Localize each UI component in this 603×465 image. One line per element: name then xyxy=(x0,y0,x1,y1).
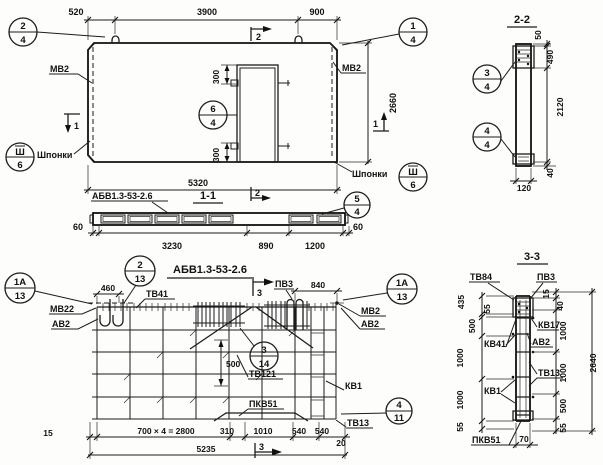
dim-3230: 3230 xyxy=(162,241,182,251)
dim-120: 120 xyxy=(517,183,531,193)
dim-500-group: 500 xyxy=(214,340,240,386)
dim-460: 460 xyxy=(101,283,115,293)
plan2-bottom-dims: 15 700 × 4 = 2800 310 1010 540 540 20 52… xyxy=(43,422,350,459)
label-shponki-left: Шпонки xyxy=(37,141,90,160)
dim-15: 15 xyxy=(43,428,53,438)
callout-bot: 4 xyxy=(484,140,490,151)
dim-1010: 1010 xyxy=(254,426,273,436)
reinforcement-plan-view: АБВ1.3-53-2.6 2 13 xyxy=(5,256,417,459)
callout-sh-6-right: Ш 6 xyxy=(399,163,427,191)
label-mv2-right: МВ2 xyxy=(333,62,366,73)
section-2-2-title: 2-2 xyxy=(514,14,530,26)
callout-top: 4 xyxy=(484,126,490,137)
dim-520: 520 xyxy=(68,7,83,17)
dim-300-top: 300 xyxy=(211,70,221,84)
section-1-label: 1 xyxy=(373,119,378,129)
section-mark-2-bot: 2 xyxy=(251,187,271,201)
callout-bot: 4 xyxy=(210,118,216,129)
label-pkv51-sec33: ПКВ51 xyxy=(471,421,521,445)
callout-top: 4 xyxy=(396,400,402,411)
label-kv17: КВ17 xyxy=(531,318,560,330)
callout-top: 1 xyxy=(410,21,416,32)
opening-dim-300-top: 300 xyxy=(211,65,237,84)
tv121-text: ТВ121 xyxy=(249,369,276,379)
kv1-text: КВ1 xyxy=(345,381,362,391)
shponki-left-text: Шпонки xyxy=(37,150,72,160)
dim-55-bot-left: 55 xyxy=(455,422,465,432)
label-shponki-right: Шпонки xyxy=(334,162,387,179)
dim-70: 70 xyxy=(519,434,529,444)
pkv51-text: ПКВ51 xyxy=(472,435,500,445)
dim-500-left: 500 xyxy=(467,319,477,333)
section-1-1-title: 1-1 xyxy=(200,190,216,202)
section-1-1-dims: 60 3230 890 1200 60 xyxy=(73,222,363,251)
tv13-text: ТВ13 xyxy=(538,368,560,378)
kv17-text: КВ17 xyxy=(538,320,560,330)
callout-top: Ш xyxy=(408,167,418,178)
label-kv1-plan2: КВ1 xyxy=(326,381,362,391)
dim-2660: 2660 xyxy=(388,93,398,113)
callout-top: 5 xyxy=(354,194,360,205)
callout-3-14: 3 14 xyxy=(240,328,278,370)
dim-435: 435 xyxy=(456,295,466,309)
callout-top: 2 xyxy=(20,21,25,32)
dim-300-bot: 300 xyxy=(211,148,221,162)
dim-60-right: 60 xyxy=(353,222,363,232)
section-3-3-view: 3-3 435 55 500 1000 1000 55 xyxy=(455,251,598,448)
label-mv2-left: МВ2 xyxy=(49,64,92,83)
panel-elevation-view: 300 300 520 3900 900 2660 xyxy=(37,7,398,194)
callout-bot: 4 xyxy=(484,82,490,93)
callout-1a-13-left: 1А 13 xyxy=(5,273,92,304)
section-mark-1-right: 1 xyxy=(373,112,389,131)
callout-top: 1А xyxy=(396,278,408,289)
av2-left-text: АВ2 xyxy=(52,319,70,329)
dim-20: 20 xyxy=(336,438,346,448)
dim-60-left: 60 xyxy=(73,222,83,232)
dim-5235: 5235 xyxy=(197,444,216,454)
lifting-loop-icon xyxy=(112,36,302,43)
callout-bot: 4 xyxy=(354,207,360,218)
callout-6-4: 6 4 xyxy=(199,101,237,129)
callout-3-4: 3 4 xyxy=(473,62,515,93)
callout-bot: 13 xyxy=(135,274,146,285)
shponki-right-text: Шпонки xyxy=(352,169,387,179)
dim-500-right: 500 xyxy=(558,399,568,413)
section-mark-1-left: 1 xyxy=(64,114,80,133)
tv13-text: ТВ13 xyxy=(347,418,369,428)
dim-900: 900 xyxy=(309,7,324,17)
opening-dim-300-bot: 300 xyxy=(211,143,237,162)
section-mark-3-bot: 3 xyxy=(255,442,282,458)
pkv51-bar-icon xyxy=(214,413,308,421)
pkv51-text: ПКВ51 xyxy=(249,399,277,409)
door-opening xyxy=(231,65,290,162)
label-mv22: МВ22 xyxy=(49,304,96,314)
dim-460-group: 460 xyxy=(93,283,124,304)
dim-1200: 1200 xyxy=(305,241,325,251)
label-pv3: ПВ3 xyxy=(274,279,294,299)
section-3-3-right-dims: 15 40 1000 1000 500 55 2640 xyxy=(532,288,598,435)
callout-bot: 4 xyxy=(410,35,416,46)
section-mark-2-top: 2 xyxy=(251,26,272,42)
callout-top: 2 xyxy=(137,260,142,271)
label-av2-left: АВ2 xyxy=(51,319,98,329)
tv41-text: ТВ41 xyxy=(146,289,168,299)
dim-500: 500 xyxy=(226,359,240,369)
dim-2640: 2640 xyxy=(588,353,598,372)
label-kv1-sec33: КВ1 xyxy=(484,380,515,403)
callout-bot: 6 xyxy=(410,180,415,191)
label-tv13-plan2: ТВ13 xyxy=(336,418,373,428)
pv3-text: ПВ3 xyxy=(537,272,555,282)
mv22-hook-icon xyxy=(100,299,123,326)
mv2-left-text: МВ2 xyxy=(50,64,69,74)
callout-bot: 11 xyxy=(394,413,405,424)
av2-text: АВ2 xyxy=(532,337,550,347)
dim-840-group: 840 xyxy=(291,280,342,301)
callout-bot: 4 xyxy=(20,35,26,46)
dim-890: 890 xyxy=(258,241,273,251)
callout-4-4: 4 4 xyxy=(473,123,515,157)
dim-40-right: 40 xyxy=(555,301,565,311)
av2-right-text: АВ2 xyxy=(361,319,379,329)
callout-bot: 13 xyxy=(397,292,408,303)
reinforcement-plan-title: АБВ1.3-53-2.6 xyxy=(173,264,247,276)
callout-top: 3 xyxy=(484,68,489,79)
dim-55-top: 55 xyxy=(482,304,492,314)
callout-1a-13-right: 1А 13 xyxy=(343,274,417,304)
dim-1000a-left: 1000 xyxy=(455,348,465,367)
hollow-core-voids xyxy=(101,215,341,223)
label-kv41: КВ41 xyxy=(484,319,516,349)
dim-40: 40 xyxy=(545,168,555,178)
callout-top: Ш xyxy=(15,147,25,158)
section-3-label: 3 xyxy=(259,442,264,452)
mv2-text: МВ2 xyxy=(361,306,380,316)
dim-840: 840 xyxy=(311,280,325,290)
callout-top: 6 xyxy=(210,104,215,115)
callout-top: 3 xyxy=(261,345,266,356)
plan-height-dim: 2660 xyxy=(339,40,398,165)
dim-490: 490 xyxy=(545,50,555,64)
plan-top-dims: 520 3900 900 xyxy=(68,7,341,40)
dim-50: 50 xyxy=(533,30,543,40)
dim-2120: 2120 xyxy=(555,97,565,116)
mv2-right-text: МВ2 xyxy=(342,63,361,73)
abv-mark-label: АБВ1.3-53-2.6 xyxy=(92,191,153,201)
dim-3900: 3900 xyxy=(197,7,217,17)
callout-1-4: 1 4 xyxy=(342,18,427,46)
rebar-mesh xyxy=(88,299,344,421)
section-2-label: 2 xyxy=(255,188,260,198)
dim-540b: 540 xyxy=(315,426,329,436)
engineering-drawing-panel-abv: 300 300 520 3900 900 2660 xyxy=(0,0,603,465)
panel-outline xyxy=(88,43,337,162)
callout-top: 1А xyxy=(14,277,26,288)
label-tv41: ТВ41 xyxy=(136,289,175,308)
callout-5-4: 5 4 xyxy=(322,192,370,218)
dim-15-right: 15 xyxy=(541,289,551,299)
section-2-label: 2 xyxy=(256,32,261,42)
section-1-label: 1 xyxy=(74,121,79,131)
callout-bot: 13 xyxy=(15,291,26,302)
pv3-text: ПВ3 xyxy=(275,279,293,289)
kv1-text: КВ1 xyxy=(484,386,501,396)
section-3-label: 3 xyxy=(257,288,262,298)
dim-310: 310 xyxy=(220,426,234,436)
section-2-2-view: 2-2 50 490 2120 40 120 3 4 xyxy=(473,14,565,193)
section-3-3-title: 3-3 xyxy=(524,251,540,263)
dim-5320: 5320 xyxy=(188,178,208,188)
section-mark-3-top: 3 xyxy=(253,279,274,299)
section-3-3-left-dims: 435 55 500 1000 1000 55 xyxy=(455,292,514,433)
callout-2-4: 2 4 xyxy=(9,18,105,46)
dim-540a: 540 xyxy=(292,426,306,436)
callout-bot: 6 xyxy=(17,160,22,171)
tv84-text: ТВ84 xyxy=(470,272,492,282)
dim-1000b-left: 1000 xyxy=(455,390,465,409)
callout-sh-6-left: Ш 6 xyxy=(6,143,34,171)
section-2-2-dims: 50 490 2120 40 120 xyxy=(510,30,565,193)
mv22-text: МВ22 xyxy=(50,304,74,314)
dim-700x4: 700 × 4 = 2800 xyxy=(137,426,194,436)
section-1-1-view: АБВ1.3-53-2.6 1-1 2 60 3230 890 1200 60 xyxy=(73,187,370,251)
kv41-text: КВ41 xyxy=(484,339,506,349)
